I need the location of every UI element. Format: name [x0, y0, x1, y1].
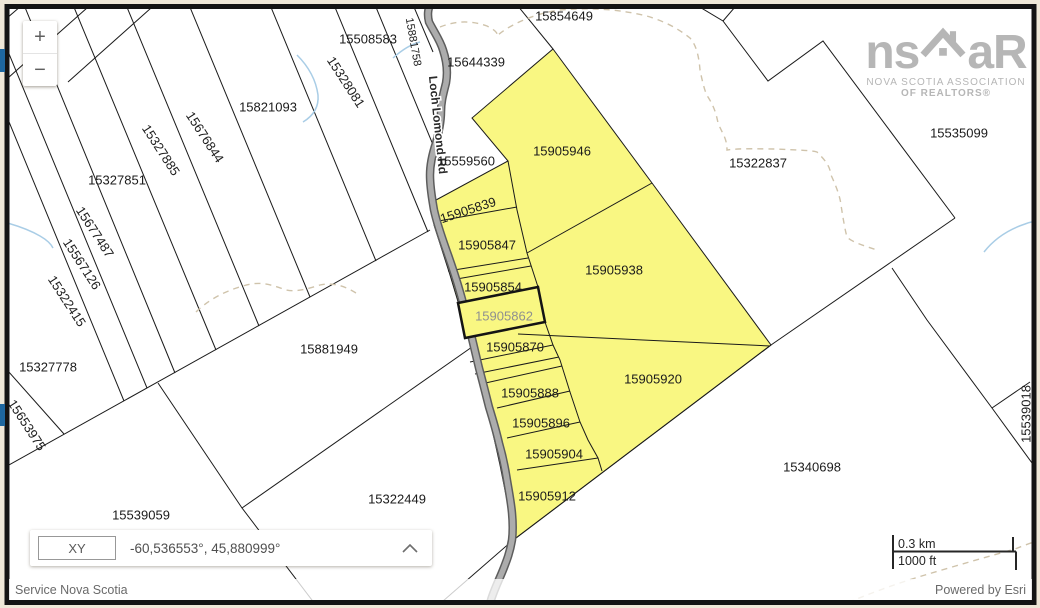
map-application: Loch Lomond Rd 1550858315854649156443391… [0, 0, 1040, 608]
parcel-label-15322837[interactable]: 15322837 [729, 156, 787, 171]
zoom-control: + − [23, 21, 57, 86]
parcel-label-15644339[interactable]: 15644339 [447, 55, 505, 70]
parcel-label-15905847[interactable]: 15905847 [458, 238, 516, 253]
nsar-word-right: aR [967, 31, 1026, 74]
parcel-label-15539059[interactable]: 15539059 [112, 508, 170, 523]
parcel-label-15905888[interactable]: 15905888 [501, 386, 559, 401]
coordinate-value: -60,536553°, 45,880999° [130, 541, 402, 556]
parcel-label-15905904[interactable]: 15905904 [525, 447, 583, 462]
parcel-label-15559560[interactable]: 15559560 [437, 154, 495, 169]
nsar-subtitle-2: OF REALTORS® [858, 88, 1034, 99]
nsar-word-left: ns [865, 31, 919, 74]
parcel-label-15905870[interactable]: 15905870 [486, 340, 544, 355]
scale-km-label: 0.3 km [898, 537, 936, 551]
attribution-bar: Service Nova Scotia Powered by Esri [9, 579, 1032, 600]
nsar-logo: ns aR NOVA SCOTIA ASSOCIATION OF REALTOR… [858, 26, 1034, 99]
nsar-subtitle-1: NOVA SCOTIA ASSOCIATION [858, 77, 1034, 88]
parcel-label-15535099[interactable]: 15535099 [930, 126, 988, 141]
left-edge-tab-top [0, 49, 5, 72]
parcel-label-15905920[interactable]: 15905920 [624, 372, 682, 387]
parcel-label-15905854[interactable]: 15905854 [464, 280, 522, 295]
parcel-label-15905912[interactable]: 15905912 [518, 489, 576, 504]
parcel-label-15327851[interactable]: 15327851 [88, 173, 146, 188]
parcel-label-15340698[interactable]: 15340698 [783, 460, 841, 475]
parcel-label-15905896[interactable]: 15905896 [512, 416, 570, 431]
collapse-chevron-icon[interactable] [402, 544, 418, 553]
parcel-label-15905938[interactable]: 15905938 [585, 263, 643, 278]
parcel-label-15322449[interactable]: 15322449 [368, 492, 426, 507]
zoom-in-button[interactable]: + [23, 21, 57, 53]
parcel-label-15905862[interactable]: 15905862 [475, 309, 533, 324]
parcel-label-15905946[interactable]: 15905946 [533, 144, 591, 159]
zoom-out-button[interactable]: − [23, 54, 57, 86]
attribution-esri: Powered by Esri [935, 583, 1026, 597]
parcel-label-15854649[interactable]: 15854649 [535, 9, 593, 24]
attribution-source: Service Nova Scotia [15, 583, 128, 597]
scale-ft-label: 1000 ft [898, 554, 937, 568]
coordinate-widget: XY -60,536553°, 45,880999° [30, 530, 432, 566]
left-edge-tab-bottom [0, 404, 5, 426]
nsar-wordmark: ns aR [858, 26, 1034, 74]
parcel-label-15327778[interactable]: 15327778 [19, 360, 77, 375]
house-icon [919, 26, 967, 74]
parcel-label-15539018[interactable]: 15539018 [1019, 385, 1034, 443]
parcel-label-15508583[interactable]: 15508583 [339, 32, 397, 47]
parcel-label-15821093[interactable]: 15821093 [239, 100, 297, 115]
parcel-label-15881949[interactable]: 15881949 [300, 342, 358, 357]
coordinate-system-selector[interactable]: XY [38, 536, 116, 560]
